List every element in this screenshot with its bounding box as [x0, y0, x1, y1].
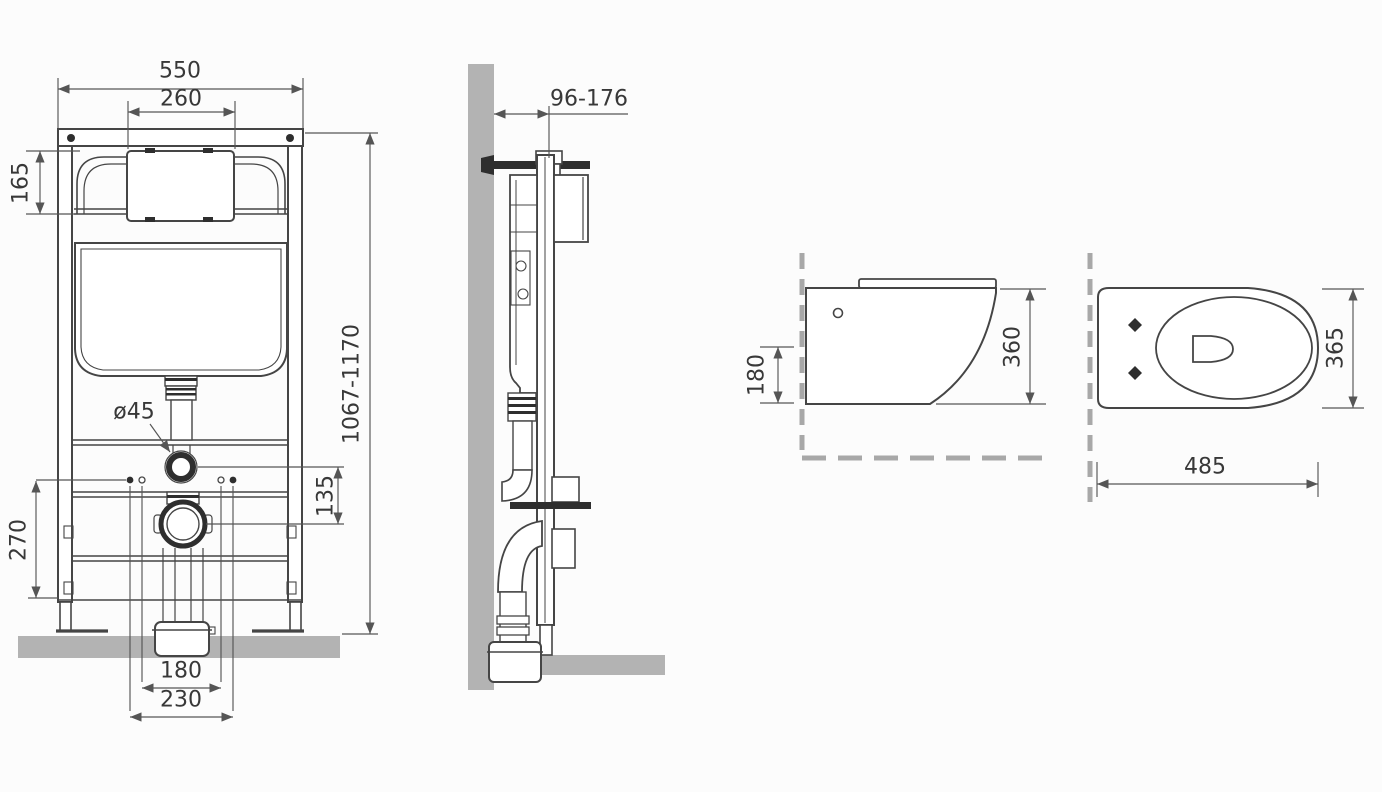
side-frame-post: [537, 155, 554, 655]
dim-fixing-stud-spacing: 180: [160, 659, 202, 684]
toilet-seat-profile: [859, 279, 996, 288]
view-bowl-top: 365 485: [1090, 253, 1364, 502]
frame-post-right: [288, 146, 302, 602]
dim-bowl-length: 485: [1184, 455, 1226, 480]
view-frame-front: ø45: [7, 59, 379, 718]
wall-bracket-rod: [481, 151, 590, 178]
view-bowl-side: 180 360: [745, 253, 1049, 458]
dim-wall-clearance: 96-176: [550, 87, 628, 112]
frame-bolt-left: [67, 134, 75, 142]
dim-lower-frame-height: 270: [7, 519, 32, 561]
dim-bowl-width: 365: [1324, 327, 1349, 369]
dim-service-opening-width: 260: [160, 87, 202, 112]
dim-installation-height: 1067-1170: [340, 324, 365, 444]
mounting-bar: [510, 502, 591, 509]
inlet-leader-line: [150, 424, 170, 452]
floor-outlet-box-side: [487, 642, 543, 682]
bowl-inlet-spigot: [552, 477, 579, 502]
dim-service-opening-height: 165: [9, 162, 34, 204]
frame-leg-left: [60, 602, 71, 631]
bowl-plan-outline: [1098, 288, 1318, 408]
side-view-dimensions: 96-176: [494, 87, 628, 159]
drain-pipes: [163, 548, 203, 622]
frame-leg-right: [290, 602, 301, 631]
dim-total-width: 550: [159, 59, 201, 84]
bowl-body-profile: [806, 288, 996, 404]
cistern-side-profile: [510, 175, 537, 393]
drawing-canvas: ø45: [0, 0, 1382, 792]
dim-outlet-spacing: 230: [160, 688, 202, 713]
technical-drawing-page: ø45: [0, 0, 1382, 792]
dim-inlet-outlet-offset: 135: [314, 475, 339, 517]
dim-outlet-axis-height: 180: [745, 354, 770, 396]
flush-valve-fitting: [165, 376, 197, 454]
drain-elbow-side: [497, 521, 542, 644]
bowl-outlet-spigot: [552, 529, 575, 568]
dim-inlet-diameter: ø45: [113, 400, 154, 425]
floor-outlet-box: [152, 622, 215, 656]
dim-bowl-height: 360: [1001, 326, 1026, 368]
cistern-tank: [75, 243, 287, 376]
frame-bolt-right: [286, 134, 294, 142]
flush-pipe-side: [502, 393, 536, 501]
access-panel: [127, 148, 234, 222]
view-frame-side: 96-176: [468, 64, 665, 690]
